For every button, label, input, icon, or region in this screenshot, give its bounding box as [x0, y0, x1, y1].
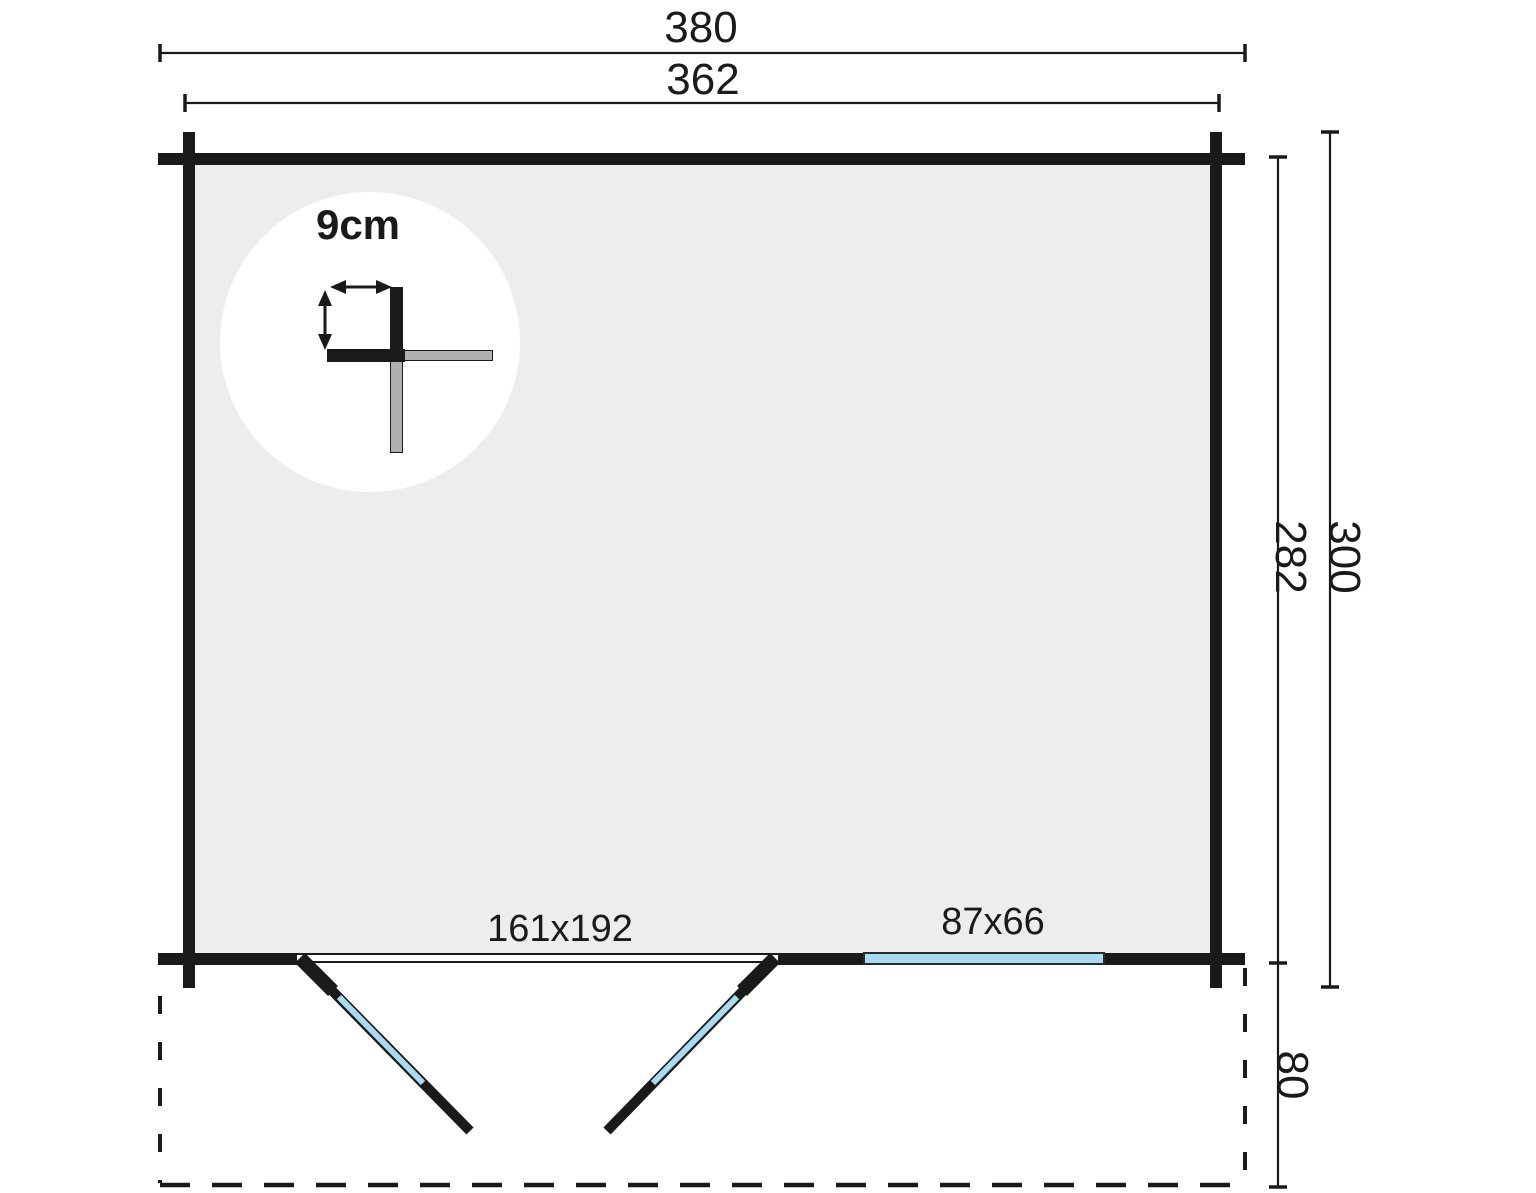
door-threshold — [297, 953, 778, 963]
detail-black-log-horizontal — [327, 349, 405, 362]
door-leaf-right — [607, 958, 775, 1131]
left-wall — [183, 132, 195, 988]
floor-plan-drawing: 380 362 282 300 80 161x192 87x66 9cm — [0, 0, 1536, 1193]
door-size-label: 161x192 — [410, 910, 710, 948]
window — [863, 952, 1105, 965]
inner-depth-label: 282 — [1268, 495, 1312, 619]
terrace-depth-label: 80 — [1270, 1015, 1314, 1135]
detail-gray-log-vertical — [390, 361, 403, 453]
bottom-wall-mid-segment — [778, 953, 863, 965]
wall-thickness-label: 9cm — [280, 204, 436, 246]
outer-width-label: 380 — [576, 6, 826, 50]
terrace-dashed-outline — [160, 968, 1245, 1185]
bottom-wall-left-segment — [158, 953, 297, 965]
detail-gray-log-horizontal — [402, 350, 493, 361]
right-wall — [1210, 132, 1222, 988]
outer-depth-label: 300 — [1322, 495, 1366, 619]
window-size-label: 87x66 — [868, 903, 1118, 941]
bottom-wall-right-segment — [1105, 953, 1245, 965]
door-leaf-left — [300, 958, 470, 1131]
inner-width-label: 362 — [578, 58, 828, 102]
top-wall — [158, 153, 1245, 165]
